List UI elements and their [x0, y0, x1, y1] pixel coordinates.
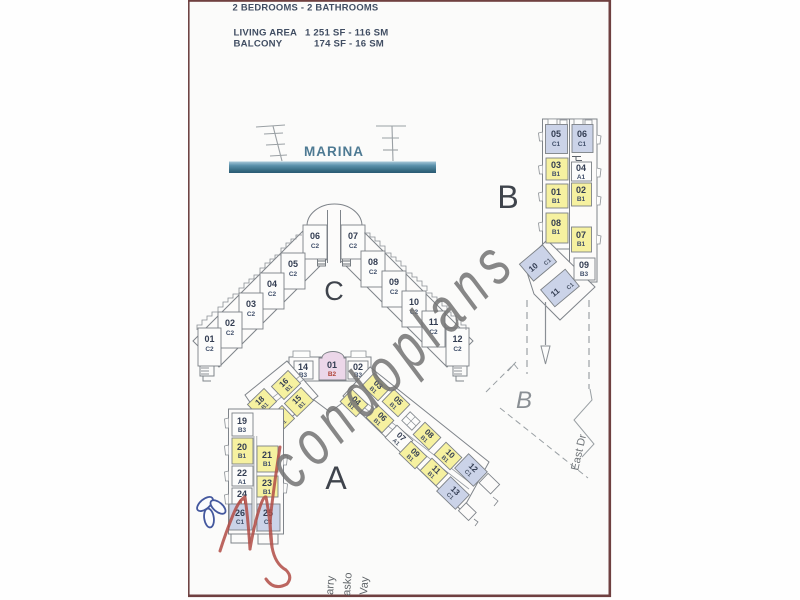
- svg-text:06: 06: [577, 129, 587, 139]
- svg-text:C2: C2: [311, 243, 320, 250]
- svg-text:03: 03: [551, 160, 561, 170]
- svg-text:C2: C2: [390, 289, 399, 296]
- svg-text:07: 07: [576, 230, 586, 240]
- svg-text:01: 01: [551, 187, 561, 197]
- svg-text:C1: C1: [578, 141, 587, 148]
- svg-text:C2: C2: [247, 311, 256, 318]
- svg-text:B3: B3: [580, 271, 589, 278]
- svg-text:C: C: [324, 276, 344, 306]
- svg-text:03: 03: [246, 299, 256, 309]
- svg-text:MARINA: MARINA: [304, 144, 364, 159]
- svg-text:C2: C2: [268, 291, 277, 298]
- svg-text:05: 05: [551, 129, 561, 139]
- svg-text:09: 09: [579, 260, 589, 270]
- svg-text:A1: A1: [238, 479, 247, 486]
- svg-text:08: 08: [551, 218, 561, 228]
- svg-text:B1: B1: [552, 171, 561, 178]
- svg-text:22: 22: [237, 468, 247, 478]
- svg-text:C2: C2: [349, 243, 358, 250]
- svg-text:asko: asko: [341, 572, 355, 596]
- svg-text:19: 19: [237, 416, 247, 426]
- svg-text:B1: B1: [552, 229, 561, 236]
- svg-text:Vay: Vay: [358, 576, 371, 595]
- svg-text:23: 23: [262, 478, 272, 488]
- svg-text:07: 07: [348, 231, 358, 241]
- svg-text:C2: C2: [205, 346, 214, 353]
- svg-text:B3: B3: [238, 427, 247, 434]
- svg-text:C1: C1: [552, 141, 561, 148]
- svg-text:06: 06: [310, 231, 320, 241]
- svg-text:B1: B1: [238, 453, 247, 460]
- svg-text:C2: C2: [226, 330, 235, 337]
- svg-text:08: 08: [368, 257, 378, 267]
- svg-text:2 BEDROOMS - 2 BATHROOMS: 2 BEDROOMS - 2 BATHROOMS: [233, 2, 379, 13]
- svg-text:A1: A1: [577, 174, 586, 181]
- svg-text:B1: B1: [577, 241, 586, 248]
- svg-text:02: 02: [225, 318, 235, 328]
- svg-text:C2: C2: [289, 271, 298, 278]
- svg-text:C1: C1: [236, 519, 245, 526]
- svg-text:04: 04: [576, 163, 586, 173]
- svg-text:09: 09: [389, 277, 399, 287]
- svg-text:04: 04: [267, 279, 277, 289]
- svg-text:C2: C2: [369, 269, 378, 276]
- svg-text:20: 20: [237, 442, 247, 452]
- svg-text:B: B: [497, 179, 518, 215]
- svg-text:arry: arry: [324, 575, 337, 595]
- svg-text:B1: B1: [552, 198, 561, 205]
- svg-text:LIVING AREA1 251 SF - 116 SM: LIVING AREA1 251 SF - 116 SM: [234, 28, 389, 39]
- svg-text:B: B: [516, 387, 532, 414]
- svg-text:B1: B1: [263, 489, 272, 496]
- svg-text:01: 01: [204, 334, 214, 344]
- svg-text:14: 14: [298, 362, 308, 372]
- svg-text:02: 02: [576, 185, 586, 195]
- svg-text:B1: B1: [577, 196, 586, 203]
- svg-text:05: 05: [288, 259, 298, 269]
